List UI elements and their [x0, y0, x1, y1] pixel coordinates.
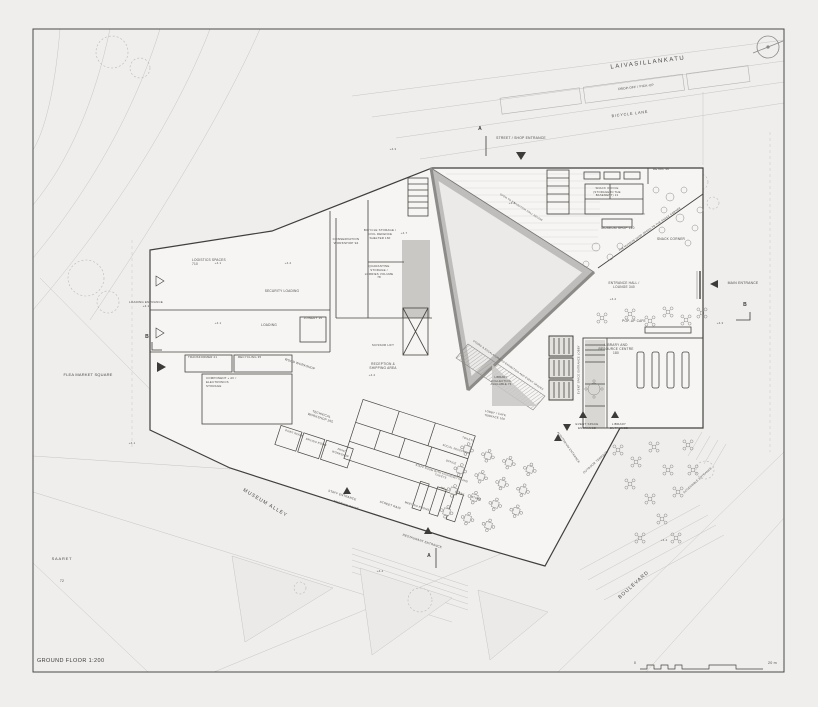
- room-recycling: RECYCLING 35: [238, 356, 268, 360]
- north-arrow-icon: [753, 36, 783, 58]
- room-scissor-lift: SCISSOR LIFT: [368, 344, 398, 348]
- level-mark: +4.3: [711, 322, 729, 326]
- room-event-lobby: EVENT SPACE ENTRANCE LOBBY: [577, 325, 581, 415]
- saaret-label: SAARET: [42, 556, 82, 561]
- event-space-entrance-label: EVENT SPACE ENTRANCE: [572, 423, 602, 431]
- saaret-area-label: 72: [52, 579, 72, 583]
- level-mark: +4.1: [209, 262, 227, 266]
- room-entrance-hall: ENTRANCE HALL / LOUNGE 340: [603, 281, 645, 289]
- room-reception: RECEPTION & SHIPPING AREA: [366, 362, 400, 370]
- level-mark: +4.1: [209, 322, 227, 326]
- section-marker-b-left: B: [142, 334, 152, 341]
- room-snack-corner: SNACK CORNER: [646, 237, 696, 241]
- level-mark: +4.3: [384, 148, 402, 152]
- level-mark: +4.2: [363, 374, 381, 378]
- room-museum-shop: MUSEUM SHOP 140: [598, 226, 638, 230]
- level-mark: +4.1: [123, 442, 141, 446]
- level-mark: +4.4: [655, 539, 673, 543]
- scale-bar: [640, 665, 763, 669]
- room-security-loading: SECURITY LOADING: [260, 289, 304, 293]
- flea-market-square-label: FLEA MARKET SQUARE: [60, 372, 116, 377]
- room-library-collection: LIBRARY COLLECTION AVAILABLE 74: [486, 376, 516, 387]
- room-retail: RETAIL 46: [650, 168, 672, 172]
- room-popup-cafe: POP-UP CAFE: [612, 319, 656, 323]
- level-mark: +4.2: [503, 202, 521, 206]
- room-bicycle-storage: BICYCLE STORAGE / CIVIL DEFENCE SHELTER …: [363, 229, 397, 240]
- level-mark: +4.4: [371, 570, 389, 574]
- library-entrance-label: LIBRARY ENTRANCE: [604, 423, 634, 431]
- street-shop-entrance-label: STREET / SHOP ENTRANCE: [496, 136, 546, 140]
- scale-max-label: 20 m: [768, 661, 788, 666]
- room-snack-office: SNACK OFFICE (STORAGE IN THE BASEMENT) 1…: [588, 187, 626, 198]
- floor-plan-linework: [0, 0, 818, 707]
- section-marker-a-bottom: A: [424, 553, 434, 560]
- room-conservation: CONSERVATION WORKSHOP 94: [329, 237, 363, 245]
- section-marker-a-top: A: [475, 126, 485, 133]
- drawing-sheet: LAIVASILLANKATU DROP-OFF / PICK-UP BICYC…: [0, 0, 818, 707]
- room-joinery: JOINERY 15: [302, 317, 324, 321]
- sheet-title: GROUND FLOOR 1:200: [37, 658, 157, 665]
- scale-zero-label: 0: [630, 661, 640, 666]
- room-component-av: COMPONENT + AV / ELECTRONICS STORAGE: [206, 377, 242, 388]
- loading-entrance-label: LOADING ENTRANCE +4.1: [128, 301, 164, 309]
- room-library-centre: LIBRARY AND RESOURCE CENTRE 180: [596, 343, 636, 355]
- level-mark: +4.7: [395, 232, 413, 236]
- level-mark: +4.2: [604, 298, 622, 302]
- room-quarantine: QUARANTINE STORAGE / LORRIES VOLUME 78: [363, 265, 395, 280]
- room-transformer: TRANSFORMER 21: [188, 356, 224, 360]
- level-mark: +4.2: [279, 262, 297, 266]
- main-entrance-label: MAIN ENTRANCE: [723, 281, 763, 285]
- room-loading: LOADING: [253, 323, 285, 327]
- section-marker-b-right: B: [740, 302, 750, 309]
